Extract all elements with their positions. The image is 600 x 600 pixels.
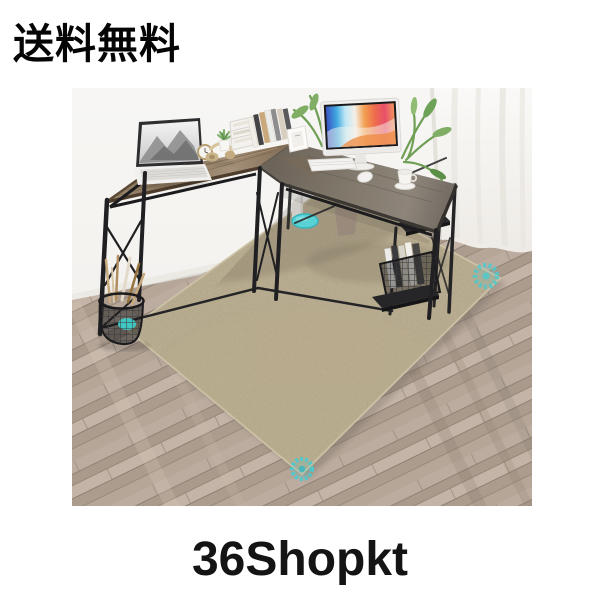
rug-grip-dot-right: [475, 265, 497, 287]
rug-grip-oval-under-desk: [292, 214, 318, 228]
curtain: [430, 88, 532, 252]
product-photo: [72, 88, 532, 506]
shipping-free-label: 送料無料: [13, 10, 181, 70]
monitor: [321, 98, 402, 156]
brand-label: 36Shopkt: [0, 532, 600, 587]
photo-frame: [287, 126, 308, 152]
rug-grip-dot-bottom: [292, 459, 312, 479]
